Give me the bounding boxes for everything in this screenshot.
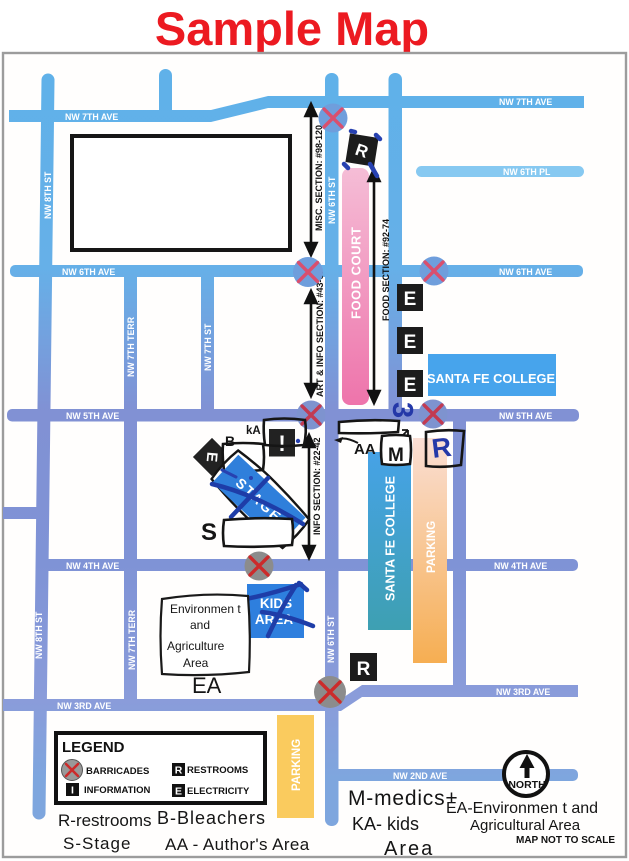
svg-text:E: E [404,375,417,396]
svg-text:BARRICADES: BARRICADES [86,766,149,777]
svg-text:E: E [203,451,221,462]
svg-text:NW 5TH AVE: NW 5TH AVE [499,411,552,421]
svg-text:AA - Author's Area: AA - Author's Area [165,835,310,854]
svg-text:RESTROOMS: RESTROOMS [187,765,248,776]
svg-text:NW 6TH PL: NW 6TH PL [503,167,551,177]
svg-text:KA- kids: KA- kids [352,814,419,834]
svg-text:NW 7TH ST: NW 7TH ST [203,323,213,371]
svg-text:R: R [430,432,453,464]
svg-text:R-restrooms: R-restrooms [58,811,152,830]
svg-text:PARKING: PARKING [291,739,303,791]
svg-text:NW 4TH AVE: NW 4TH AVE [66,561,119,571]
svg-text:NW 3RD AVE: NW 3RD AVE [496,687,550,697]
svg-text:EA-Environmen t and: EA-Environmen t and [446,800,598,817]
svg-text:EA: EA [192,673,222,698]
svg-text:kA: kA [246,425,261,437]
svg-text:Area: Area [384,838,434,860]
svg-text:NW 7TH TERR: NW 7TH TERR [126,316,136,377]
svg-text:LEGEND: LEGEND [62,739,125,756]
svg-text:3: 3 [386,402,418,418]
svg-text:NW 8TH ST: NW 8TH ST [43,171,53,219]
svg-text:FOOD COURT: FOOD COURT [349,227,364,319]
svg-text:I: I [71,785,74,797]
svg-text:NW 5TH AVE: NW 5TH AVE [66,411,119,421]
svg-text:ELECTRICITY: ELECTRICITY [187,786,250,797]
svg-text:M: M [388,445,404,466]
svg-text:ART & INFO SECTION: #43-67: ART & INFO SECTION: #43-67 [315,269,325,397]
svg-text:B-Bleachers: B-Bleachers [157,808,266,828]
svg-text:B: B [225,433,235,449]
svg-text:Agricultural Area: Agricultural Area [470,817,581,834]
svg-text:NW 6TH ST: NW 6TH ST [327,176,337,224]
svg-text:R: R [175,765,183,777]
svg-text:NW 6TH AVE: NW 6TH AVE [62,267,115,277]
svg-text:NW 4TH AVE: NW 4TH AVE [494,561,547,571]
svg-text:E: E [175,786,182,798]
svg-text:Agriculture: Agriculture [167,639,225,653]
svg-text:Environmen t: Environmen t [170,602,241,616]
svg-text:NW 6TH AVE: NW 6TH AVE [499,267,552,277]
svg-text:S-Stage: S-Stage [63,834,131,853]
svg-text:NW 7TH TERR: NW 7TH TERR [127,609,137,670]
svg-text:Area: Area [183,656,209,670]
svg-text:INFO SECTION: #22-42: INFO SECTION: #22-42 [312,437,322,535]
svg-text:MISC. SECTION: #98-120: MISC. SECTION: #98-120 [314,125,324,231]
svg-text:NW 3RD AVE: NW 3RD AVE [57,701,111,711]
svg-text:!: ! [278,431,285,456]
svg-text:NW 2ND AVE: NW 2ND AVE [393,771,447,781]
svg-text:INFORMATION: INFORMATION [84,785,150,796]
svg-text:SANTA FE COLLEGE: SANTA FE COLLEGE [427,371,555,386]
svg-text:and: and [190,618,210,632]
svg-text:MAP NOT TO SCALE: MAP NOT TO SCALE [516,835,615,846]
svg-text:NW 8TH ST: NW 8TH ST [34,611,44,659]
svg-text:SANTA FE COLLEGE: SANTA FE COLLEGE [384,476,398,601]
svg-text:E: E [404,289,417,310]
svg-text:S: S [201,519,217,546]
svg-text:E: E [404,332,417,353]
svg-text:NW 7TH AVE: NW 7TH AVE [65,112,118,122]
svg-text:PARKING: PARKING [426,521,438,573]
svg-text:M-medics+: M-medics+ [348,787,458,810]
svg-text:NW 6TH ST: NW 6TH ST [326,615,336,663]
svg-text:Sample Map: Sample Map [155,2,429,55]
svg-text:NW 7TH AVE: NW 7TH AVE [499,97,552,107]
svg-text:NORTH: NORTH [508,779,545,791]
svg-text:FOOD SECTION: #92-74: FOOD SECTION: #92-74 [381,219,391,321]
svg-text:R: R [357,659,371,680]
